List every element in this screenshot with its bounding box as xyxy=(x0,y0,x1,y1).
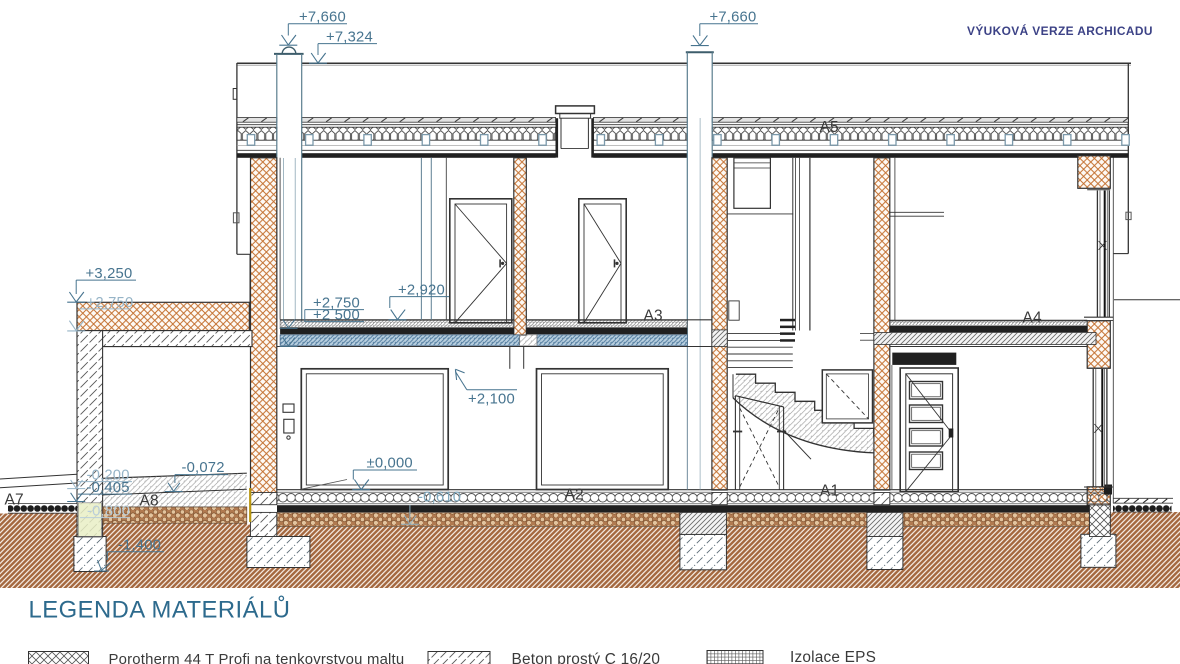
svg-text:+2 500: +2 500 xyxy=(313,307,360,323)
svg-text:-1,400: -1,400 xyxy=(118,537,161,553)
svg-text:LEGENDA MATERIÁLŮ: LEGENDA MATERIÁLŮ xyxy=(29,595,291,624)
svg-text:Porotherm 44 T Profi na tenkov: Porotherm 44 T Profi na tenkovrstvou mal… xyxy=(109,652,405,664)
svg-text:-0,610: -0,610 xyxy=(418,489,461,505)
svg-text:A8: A8 xyxy=(140,493,159,510)
svg-text:-0,800: -0,800 xyxy=(87,503,130,519)
svg-text:A5: A5 xyxy=(820,119,839,136)
svg-text:+3,250: +3,250 xyxy=(86,266,133,282)
svg-text:VÝUKOVÁ VERZE ARCHICADU: VÝUKOVÁ VERZE ARCHICADU xyxy=(967,23,1153,38)
svg-text:+7,660: +7,660 xyxy=(299,10,346,26)
svg-text:+2,920: +2,920 xyxy=(398,282,445,298)
svg-text:+7,324: +7,324 xyxy=(326,29,373,45)
svg-text:±0,000: ±0,000 xyxy=(367,455,413,471)
svg-text:A3: A3 xyxy=(644,308,663,325)
svg-text:+7,660: +7,660 xyxy=(710,10,757,26)
svg-text:A1: A1 xyxy=(820,483,839,500)
svg-text:Izolace EPS: Izolace EPS xyxy=(790,649,876,664)
svg-text:-0,072: -0,072 xyxy=(182,460,225,476)
svg-text:A2: A2 xyxy=(565,487,584,504)
svg-text:Beton prostý C 16/20: Beton prostý C 16/20 xyxy=(512,651,661,664)
svg-text:+2,100: +2,100 xyxy=(468,391,515,407)
svg-text:-0,405: -0,405 xyxy=(87,480,130,496)
svg-text:A4: A4 xyxy=(1023,310,1043,327)
svg-text:A7: A7 xyxy=(5,492,24,509)
